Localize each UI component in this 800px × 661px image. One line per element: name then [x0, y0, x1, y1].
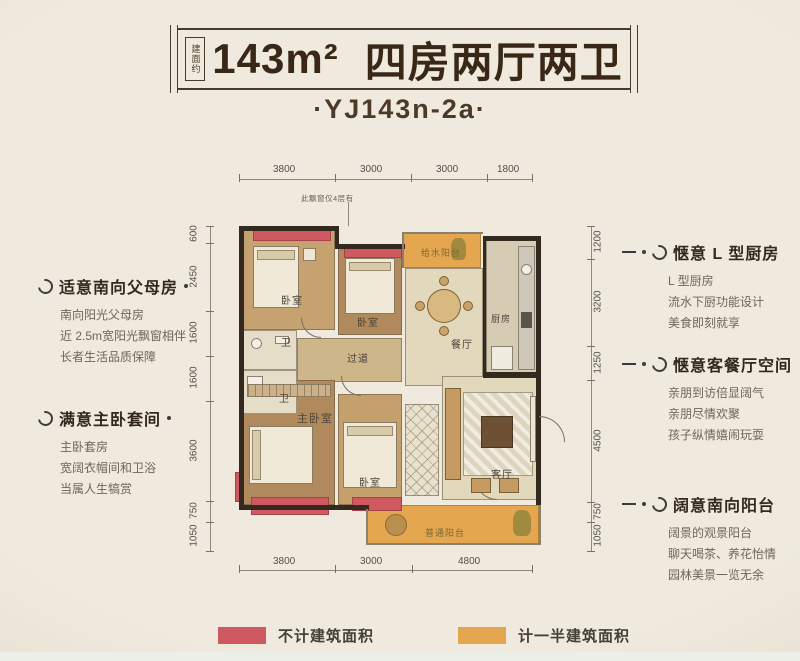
dining-chair: [415, 301, 425, 311]
room-label-corridor: 过道: [347, 350, 369, 365]
annotation-head: 惬意客餐厅空间: [622, 352, 800, 376]
dim-label: 3800: [273, 164, 295, 175]
annotation-title: 惬意客餐厅空间: [673, 352, 792, 376]
annotation-parents-room: 适意南向父母房 南向阳光父母房 近 2.5m宽阳光飘窗相伴 长者生活品质保障: [38, 274, 228, 368]
ring-icon: [649, 242, 670, 263]
banner-bracket-right: [630, 25, 638, 93]
balcony-wall: [366, 543, 541, 545]
wall: [239, 226, 244, 510]
annotation-line: L 型厨房: [668, 271, 800, 292]
room-label-master: 主卧室: [297, 410, 333, 426]
armchair: [471, 478, 491, 493]
leader-dot: [184, 284, 188, 288]
ring-icon: [649, 354, 670, 375]
dim-label: 3800: [273, 556, 295, 567]
balcony-wall: [366, 509, 368, 545]
room-label-bath2: 卫: [279, 390, 290, 405]
room-label-bedroom2: 卧室: [357, 314, 379, 329]
balcony-mat: [385, 514, 407, 536]
dim-tick: [239, 174, 240, 182]
page-title: 四房两厅两卫: [365, 29, 623, 90]
annotation-line: 聊天喝茶、养花怡情: [668, 544, 800, 565]
dim-tick: [206, 501, 214, 502]
annotation-line: 长者生活品质保障: [60, 347, 228, 368]
fridge: [491, 346, 513, 370]
dim-tick: [206, 243, 214, 244]
dining-chair: [439, 276, 449, 286]
annotation-head: 阔意南向阳台: [622, 492, 800, 516]
floor-plan: 卧室 卧室 卫 卫 过道 餐厅 厨房 给水阳台 主卧室 卧室 客厅 普通阳台: [239, 226, 541, 552]
room-label-living: 客厅: [491, 466, 513, 481]
dim-tick: [206, 522, 214, 523]
annotation-line: 亲朋尽情欢聚: [668, 404, 800, 425]
dim-label: 600: [189, 212, 200, 256]
leader-line: [622, 363, 636, 365]
annotation-line: 园林美景一览无余: [668, 565, 800, 586]
unit-code-subtitle: ·YJ143n-2a·: [0, 94, 800, 125]
dining-table: [427, 289, 461, 323]
dim-label: 4500: [593, 419, 604, 463]
dim-tick: [239, 565, 240, 573]
dim-label: 3000: [360, 556, 382, 567]
annotation-head: 惬意 L 型厨房: [622, 240, 800, 264]
dim-tick: [411, 174, 412, 182]
toilet: [251, 338, 262, 349]
plan-note: 此飘窗仅4层有: [301, 193, 354, 204]
annotation-line: 美食即刻就享: [668, 313, 800, 334]
room-label-bedroom3: 卧室: [359, 474, 381, 489]
kitchen-sink: [521, 264, 532, 275]
leader-dot: [642, 362, 646, 366]
bed-pillow: [347, 426, 393, 436]
dim-label: 3000: [360, 164, 382, 175]
wall: [483, 236, 541, 241]
annotation-line: 近 2.5m宽阳光飘窗相伴: [60, 326, 228, 347]
annotation-kitchen: 惬意 L 型厨房 L 型厨房 流水下厨功能设计 美食即刻就享: [622, 240, 800, 334]
dim-tick: [206, 401, 214, 402]
area-approx-box: 建面约: [185, 37, 205, 81]
annotation-master-suite: 满意主卧套间 主卧套房 宽阔衣帽间和卫浴 当属人生犒赏: [38, 406, 228, 500]
dim-label: 1050: [593, 514, 604, 558]
annotation-living-dining: 惬意客餐厅空间 亲朋到访倍显阔气 亲朋尽情欢聚 孩子纵情嬉闹玩耍: [622, 352, 800, 446]
dim-tick: [532, 565, 533, 573]
dim-label: 1800: [497, 164, 519, 175]
leader-line: [622, 251, 636, 253]
dim-tick: [206, 551, 214, 552]
dim-top: 3800 3000 3000 1800: [239, 164, 533, 182]
room-label-bedroom1: 卧室: [281, 292, 303, 307]
annotation-line: 阔景的观景阳台: [668, 523, 800, 544]
dim-label: 3000: [436, 164, 458, 175]
leader-dot: [167, 416, 171, 420]
nightstand: [303, 248, 316, 261]
legend-item-half-area: 计一半建筑面积: [458, 625, 630, 646]
legend: 不计建筑面积 计一半建筑面积: [218, 625, 630, 646]
annotation-line: 宽阔衣帽间和卫浴: [60, 458, 228, 479]
ring-icon: [35, 408, 56, 429]
dim-tick: [335, 174, 336, 182]
room-label-water-balcony: 给水阳台: [421, 246, 461, 259]
leader-dot: [642, 250, 646, 254]
dim-label: 1200: [593, 220, 604, 264]
annotation-balcony: 阔意南向阳台 阔景的观景阳台 聊天喝茶、养花怡情 园林美景一览无余: [622, 492, 800, 586]
room-label-balcony: 普通阳台: [425, 526, 465, 539]
wall: [239, 505, 369, 510]
dim-tick: [487, 174, 488, 182]
annotation-line: 当属人生犒赏: [60, 479, 228, 500]
banner-bracket-left: [170, 25, 178, 93]
bed-pillow: [257, 250, 295, 260]
ring-icon: [35, 276, 56, 297]
dining-chair: [439, 326, 449, 336]
title-banner: 建面约 143m² 四房两厅两卫: [178, 28, 630, 90]
sofa: [445, 388, 461, 480]
wall: [536, 236, 541, 505]
door-arc: [301, 318, 321, 338]
dim-label: 1050: [189, 514, 200, 558]
wall: [483, 372, 539, 378]
door-arc: [341, 376, 361, 396]
annotation-head: 适意南向父母房: [38, 274, 228, 298]
balcony-wall: [402, 232, 483, 234]
wall: [483, 241, 486, 372]
poster-canvas: 建面约 143m² 四房两厅两卫 ·YJ143n-2a· 3800 3000 3…: [0, 0, 800, 661]
annotation-title: 惬意 L 型厨房: [673, 240, 779, 264]
bed-pillow: [349, 262, 391, 271]
annotation-title: 阔意南向阳台: [673, 492, 775, 516]
dim-right: 1200 3200 1250 4500 750 1050: [588, 226, 616, 552]
dim-tick: [335, 565, 336, 573]
legend-swatch-orange: [458, 627, 506, 644]
room-walkin-closet: [405, 404, 439, 496]
annotation-head: 满意主卧套间: [38, 406, 228, 430]
note-leader-line: [348, 202, 349, 226]
plant: [513, 510, 531, 536]
wall: [239, 226, 338, 231]
legend-item-no-area: 不计建筑面积: [218, 625, 374, 646]
legend-label: 计一半建筑面积: [518, 625, 630, 646]
entry-door-arc: [539, 416, 565, 442]
leader-line: [622, 503, 636, 505]
legend-swatch-red: [218, 627, 266, 644]
wall: [335, 244, 405, 249]
tv-cabinet: [530, 396, 536, 462]
kitchen-stove: [521, 312, 532, 328]
ring-icon: [649, 494, 670, 515]
dim-label: 1250: [593, 341, 604, 385]
room-label-dining: 餐厅: [451, 336, 473, 351]
dim-tick: [532, 174, 533, 182]
annotation-line: 亲朋到访倍显阔气: [668, 383, 800, 404]
leader-dot: [642, 502, 646, 506]
coffee-table: [481, 416, 513, 448]
room-label-bath1: 卫: [281, 334, 292, 349]
dim-line: [239, 570, 533, 571]
annotation-line: 主卧套房: [60, 437, 228, 458]
dim-label: 4800: [458, 556, 480, 567]
dining-chair: [463, 301, 473, 311]
annotation-line: 南向阳光父母房: [60, 305, 228, 326]
annotation-line: 流水下厨功能设计: [668, 292, 800, 313]
annotation-title: 适意南向父母房: [59, 274, 178, 298]
dim-tick: [412, 565, 413, 573]
balcony-wall: [539, 505, 541, 545]
room-label-kitchen: 厨房: [491, 312, 511, 325]
legend-label: 不计建筑面积: [278, 625, 374, 646]
balcony-wall: [402, 232, 404, 268]
bottom-strip: [0, 652, 800, 661]
dim-label: 3200: [593, 280, 604, 324]
dim-bottom: 3800 3000 4800: [239, 556, 533, 574]
bed-pillow: [252, 430, 261, 480]
annotation-line: 孩子纵情嬉闹玩耍: [668, 425, 800, 446]
dim-tick: [206, 226, 214, 227]
area-value: 143m²: [212, 35, 338, 83]
dim-line: [239, 179, 533, 180]
annotation-title: 满意主卧套间: [59, 406, 161, 430]
